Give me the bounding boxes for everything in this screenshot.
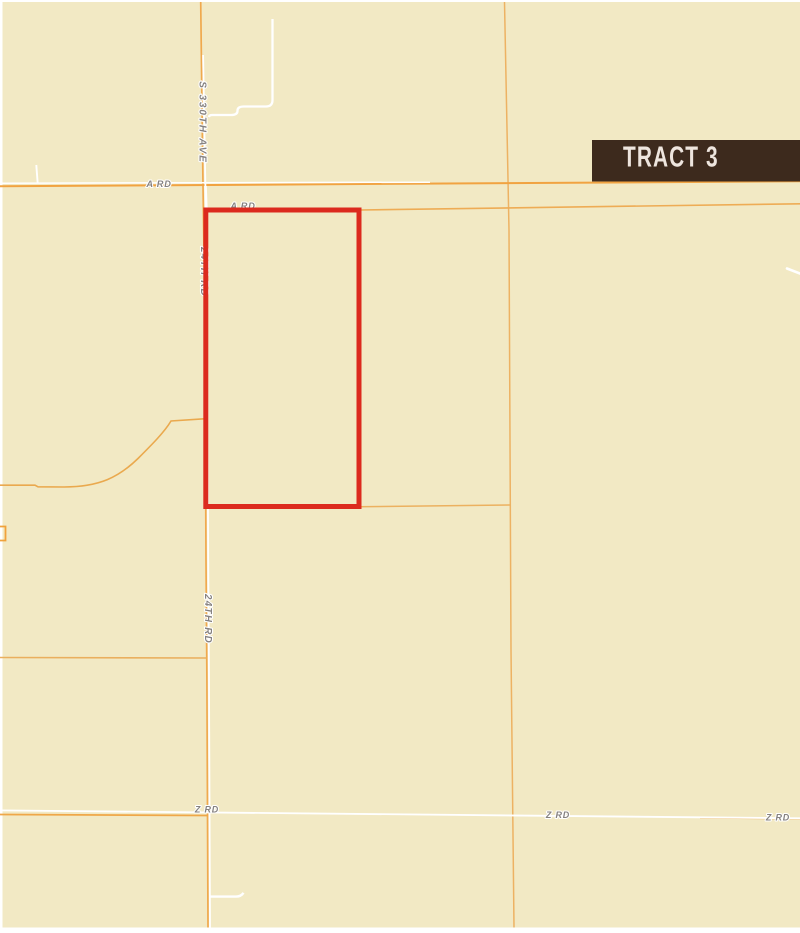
svg-text:Z RD: Z RD <box>765 813 790 823</box>
svg-text:TRACT 3: TRACT 3 <box>623 141 719 173</box>
svg-text:S 330TH AVE: S 330TH AVE <box>196 81 207 164</box>
svg-text:A RD: A RD <box>145 179 171 189</box>
svg-text:Z RD: Z RD <box>194 805 219 815</box>
svg-text:Z RD: Z RD <box>545 810 570 820</box>
svg-text:24TH RD: 24TH RD <box>202 593 213 644</box>
